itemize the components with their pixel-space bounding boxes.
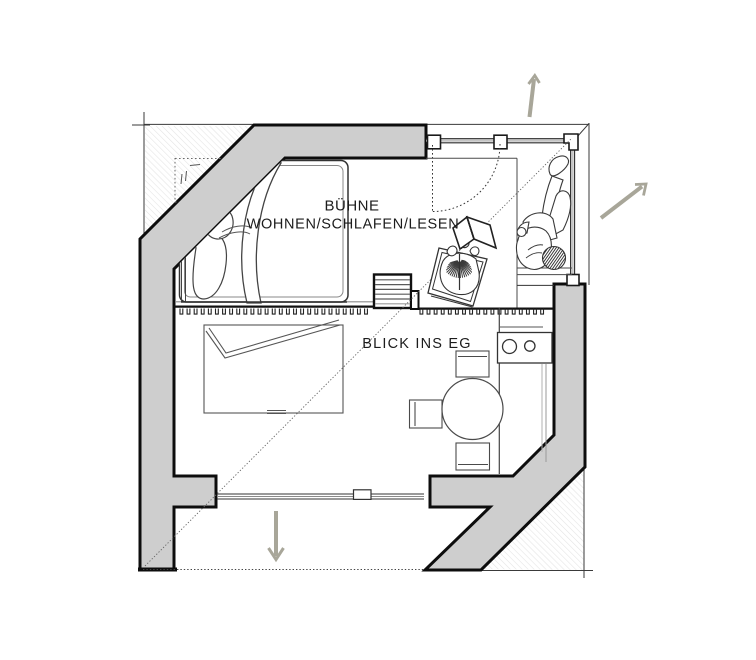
svg-text:BLICK INS EG: BLICK INS EG <box>362 336 472 352</box>
svg-text:WOHNEN/SCHLAFEN/LESEN: WOHNEN/SCHLAFEN/LESEN <box>247 217 460 233</box>
svg-text:BÜHNE: BÜHNE <box>324 197 379 215</box>
